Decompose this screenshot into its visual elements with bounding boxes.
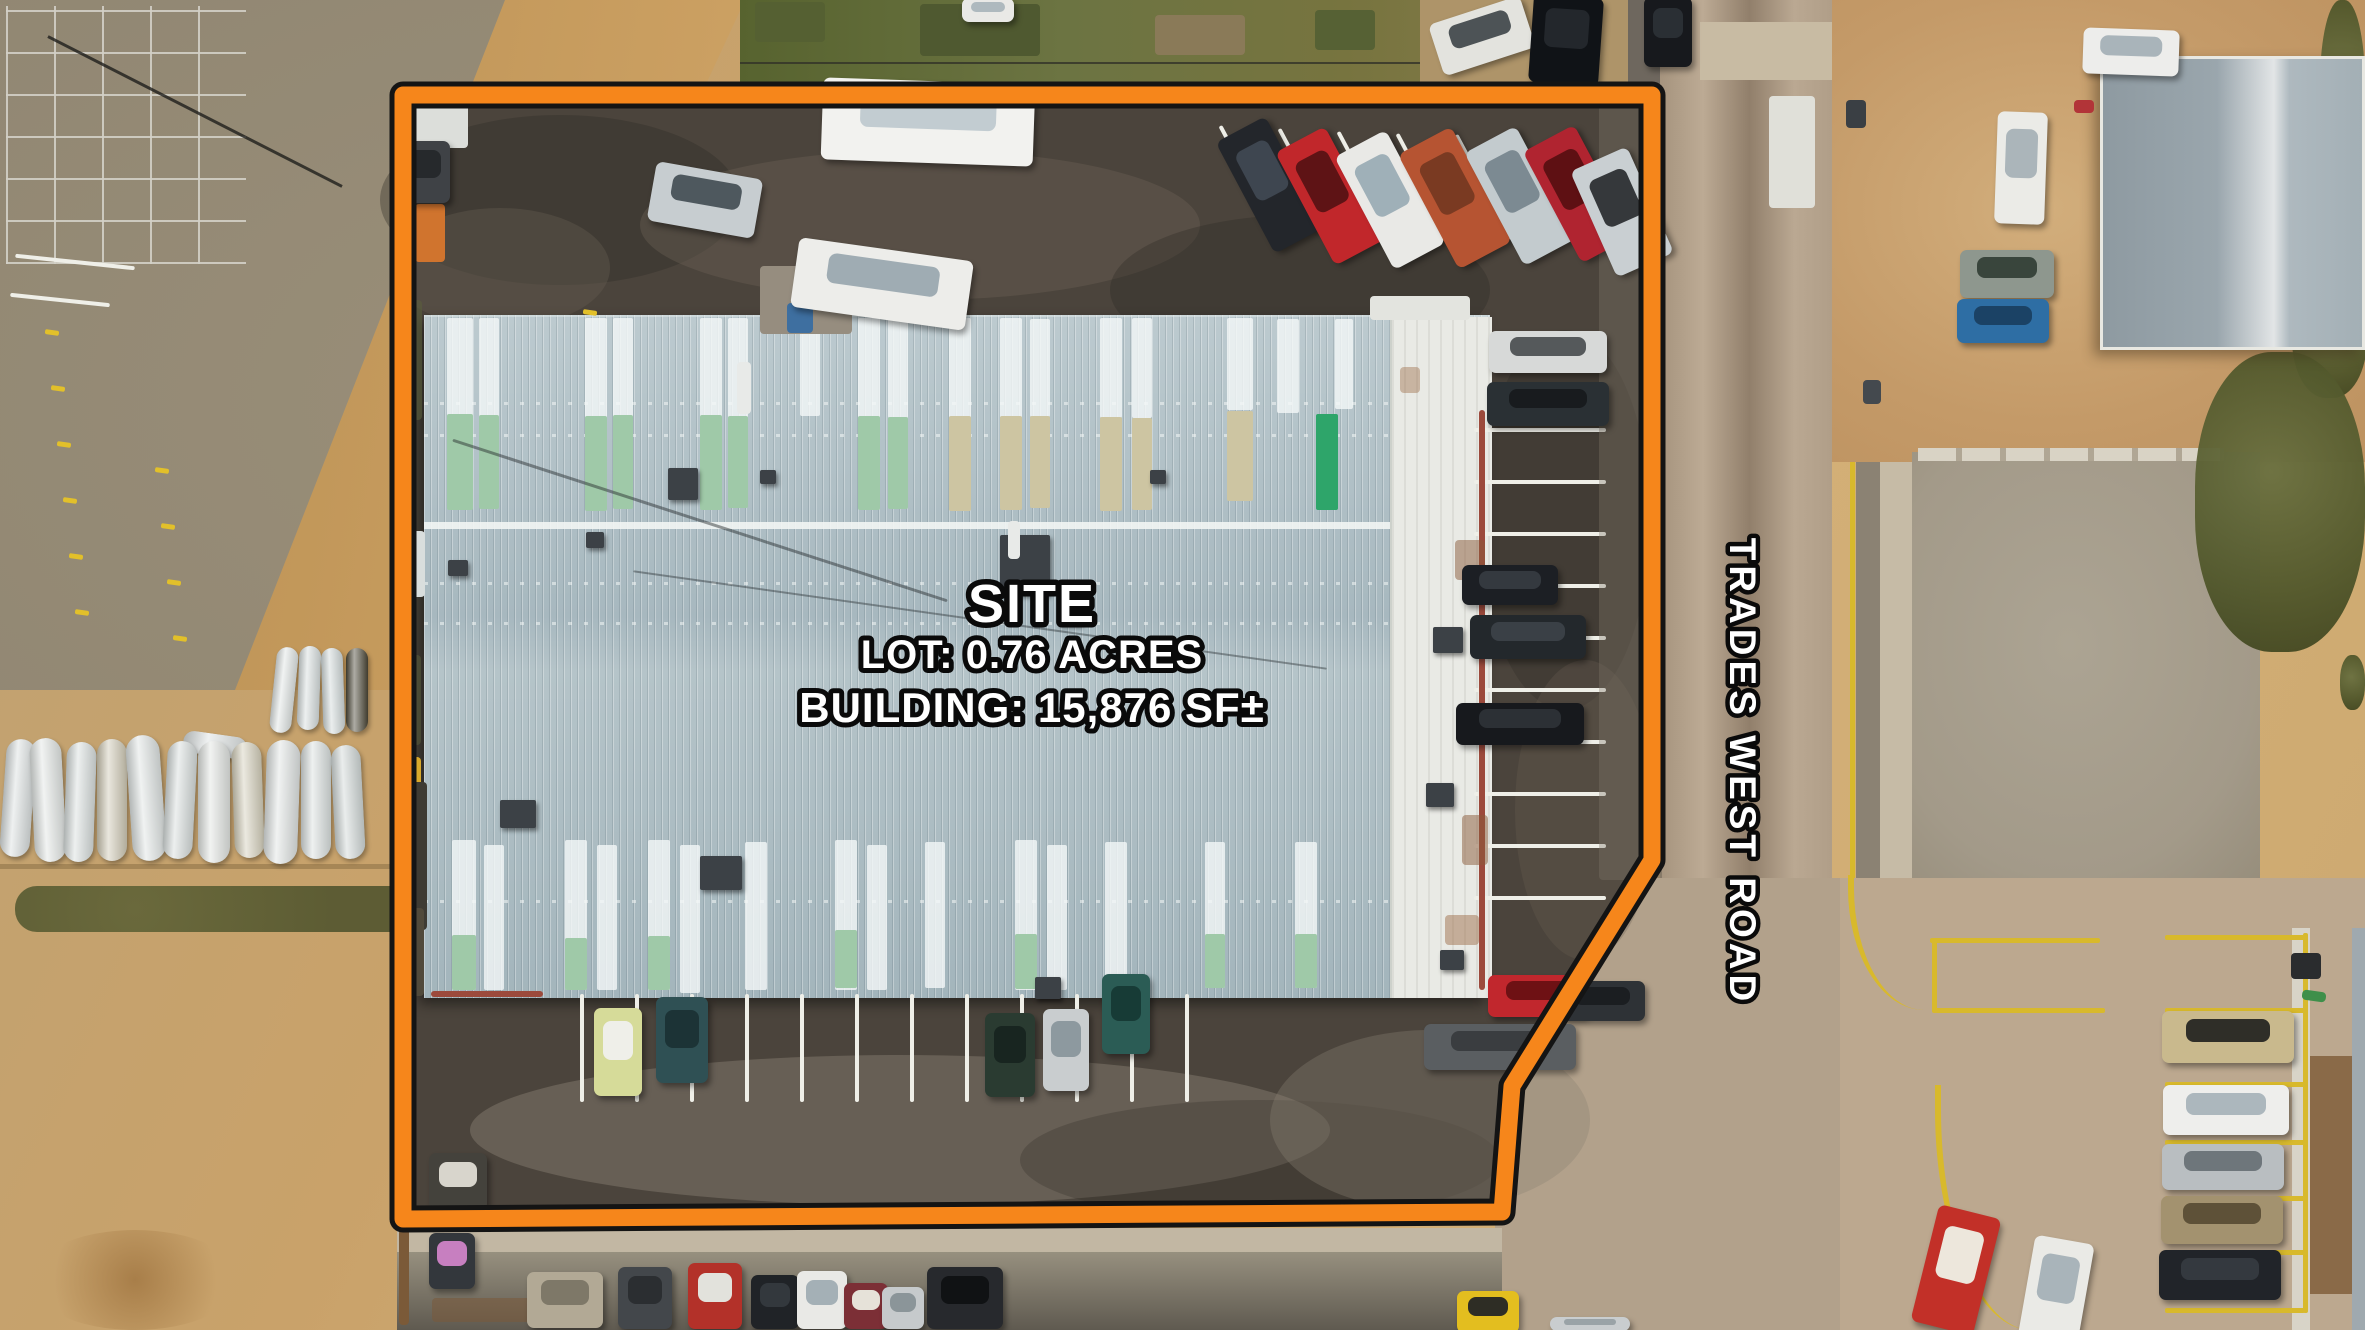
vehicle (594, 1008, 642, 1096)
scene-object (1462, 815, 1488, 865)
yellow-stall-line (1935, 1008, 2105, 1013)
roof-skylight-strip (867, 845, 887, 990)
vehicle-glass (1977, 257, 2037, 278)
vehicle-glass (541, 1280, 590, 1305)
vehicle-glass (439, 1162, 476, 1188)
vehicle-glass (1451, 1031, 1548, 1051)
vehicle-glass (1491, 622, 1565, 641)
vehicle (1456, 703, 1584, 745)
yellow-marker (75, 609, 90, 616)
roof-skylight-strip (1030, 416, 1050, 508)
vehicle-glass (1479, 709, 1561, 727)
yellow-marker (69, 553, 84, 560)
vehicle-glass (1509, 389, 1587, 408)
parking-stall-line (1474, 480, 1606, 484)
vehicle-glass (941, 1276, 990, 1303)
scene-object (1846, 100, 1866, 128)
roof-skylight-strip (648, 936, 670, 990)
rooftop-hvac-unit (1440, 950, 1464, 970)
roof-skylight-strip (680, 845, 700, 993)
roof-skylight-strip (452, 935, 476, 990)
vehicle-glass (806, 1280, 838, 1306)
vehicle (985, 1013, 1035, 1097)
storage-tank (297, 646, 322, 731)
vehicle-glass (698, 1273, 733, 1302)
roof-skylight-strip (1100, 417, 1122, 511)
scene-object (415, 204, 445, 262)
scene-object (1155, 15, 1245, 55)
vehicle-glass (628, 1276, 663, 1303)
roof-skylight-strip (949, 318, 971, 418)
vehicle (1043, 1009, 1089, 1091)
storage-tank (231, 742, 265, 859)
scene-object (406, 300, 422, 420)
roof-skylight-strip (585, 416, 607, 511)
roof-skylight-strip (1295, 934, 1317, 988)
vehicle (2162, 1011, 2294, 1063)
rooftop-hvac-unit (586, 532, 604, 548)
yellow-marker (167, 579, 182, 586)
vehicle (882, 1287, 924, 1329)
vehicle-glass (2184, 1151, 2262, 1171)
vehicle-glass (1587, 167, 1644, 230)
scene-object (2291, 953, 2321, 979)
roof-skylight-strip (585, 318, 607, 418)
vehicle-glass (1510, 337, 1586, 355)
vehicle-glass (409, 150, 441, 177)
vehicle-glass (2186, 1019, 2270, 1042)
roof-skylight-strip (835, 930, 857, 988)
scene-object (2074, 100, 2094, 113)
vehicle-glass (670, 173, 743, 211)
vehicle (1424, 1024, 1576, 1070)
roof-skylight-strip (888, 417, 908, 509)
yellow-stall-line (2165, 1308, 2305, 1313)
parking-stall-line (910, 994, 914, 1102)
vehicle (1489, 331, 1607, 373)
storage-tank (330, 744, 366, 859)
parking-stall-line (1474, 896, 1606, 900)
parking-stall-line (10, 293, 110, 307)
roof-skylight-strip (888, 318, 908, 418)
vehicle-glass (760, 1283, 791, 1307)
vehicle-glass (437, 1241, 466, 1266)
vehicle (1994, 111, 2048, 225)
roof-skylight-strip (1132, 318, 1152, 418)
roof-skylight-strip (700, 415, 722, 510)
scene-object (400, 908, 424, 996)
vehicle-glass (852, 1290, 880, 1310)
vehicle (927, 1267, 1003, 1329)
vehicle (1957, 299, 2049, 343)
roof-skylight-strip (1227, 411, 1253, 501)
vehicle (1550, 1317, 1630, 1330)
roof-skylight-strip (800, 321, 820, 416)
yellow-marker (51, 385, 66, 392)
yellow-marker (583, 309, 598, 316)
scene-object (1479, 410, 1485, 990)
yellow-stall-line (1930, 938, 2100, 943)
vehicle-glass (2100, 35, 2162, 57)
roof-skylight-strip (447, 318, 473, 418)
storage-tank (269, 646, 300, 734)
vehicle-glass (2005, 128, 2039, 178)
vehicle (429, 1153, 487, 1211)
roof-skylight-strip (728, 416, 748, 508)
storage-tank (29, 737, 67, 863)
roof-skylight-strip (597, 845, 617, 990)
roof-skylight-strip (1105, 842, 1127, 990)
vehicle (2161, 1196, 2283, 1244)
roof-skylight-strip (1277, 319, 1299, 413)
rooftop-hvac-unit (1433, 627, 1463, 653)
vehicle (656, 997, 708, 1083)
yellow-stall-line (1932, 938, 1937, 1013)
vehicle (1559, 981, 1645, 1021)
yellow-marker (161, 523, 176, 530)
parking-stall-line (580, 994, 584, 1102)
roof-skylight-strip (484, 845, 504, 990)
parking-stall-line (15, 254, 135, 271)
vehicle (962, 0, 1014, 22)
roof-skylight-strip (1132, 418, 1152, 510)
vehicle (647, 161, 764, 239)
vehicle-glass (1974, 306, 2033, 325)
vehicle-glass (1653, 8, 1684, 39)
roof-skylight-strip (565, 938, 587, 990)
scene-object (399, 1215, 409, 1325)
vehicle-glass (1447, 9, 1513, 51)
rooftop-hvac-unit (500, 800, 536, 828)
rooftop-hvac-unit (980, 700, 998, 714)
scene-object (755, 2, 825, 42)
scene-object (407, 655, 421, 745)
scene-object (737, 362, 751, 414)
rooftop-hvac-unit (1058, 605, 1082, 625)
parking-stall-line (1474, 844, 1606, 848)
vehicle (1487, 382, 1609, 426)
vehicle (1428, 0, 1536, 77)
vehicle-glass (971, 2, 1004, 13)
vehicle (1528, 0, 1604, 86)
vehicle-glass (2186, 1093, 2267, 1115)
scene-object (1315, 10, 1375, 50)
vehicle (1462, 565, 1558, 605)
scene-object (431, 991, 543, 997)
scene-object (633, 570, 1326, 669)
parking-stall-line (1474, 792, 1606, 796)
vehicle (400, 141, 450, 203)
storage-tank (346, 648, 368, 732)
rooftop-hvac-unit (700, 856, 742, 890)
rooftop-hvac-unit (1150, 470, 1166, 484)
yellow-stall-line (2165, 935, 2305, 940)
scene-object (399, 531, 425, 597)
vehicle (1457, 1291, 1519, 1330)
roof-skylight-strip (1227, 318, 1253, 410)
aerial-site-photo: SITE LOT: 0.76 ACRES BUILDING: 15,876 SF… (0, 0, 2365, 1330)
roof-skylight-strip (745, 842, 767, 990)
vehicle (429, 1233, 475, 1289)
vehicle-glass (1543, 8, 1590, 50)
vehicle (2163, 1085, 2289, 1135)
vehicle-glass (1934, 1224, 1987, 1285)
roof-skylight-strip (1100, 318, 1122, 418)
vehicle (797, 1271, 847, 1329)
scene-object (1769, 96, 1815, 208)
vehicle (2082, 27, 2180, 76)
storage-tank (301, 741, 331, 859)
scene-objects-layer (0, 0, 2365, 1330)
storage-tank (162, 740, 198, 859)
roof-skylight-strip (1316, 414, 1338, 510)
yellow-marker (57, 441, 72, 448)
vehicle (751, 1275, 799, 1329)
roof-skylight-strip (1000, 416, 1022, 510)
parking-stall-line (1474, 428, 1606, 432)
vehicle-glass (890, 1293, 917, 1311)
vehicle-glass (1574, 987, 1629, 1005)
roof-skylight-strip (925, 842, 945, 988)
roof-skylight-strip (700, 318, 722, 418)
roof-skylight-strip (479, 318, 499, 418)
yellow-marker (45, 329, 60, 336)
storage-tank (63, 742, 97, 863)
vehicle (527, 1272, 603, 1328)
parking-stall-line (855, 994, 859, 1102)
vehicle (1470, 615, 1586, 659)
vehicle-glass (603, 1021, 634, 1060)
parking-stall-line (745, 994, 749, 1102)
vehicle-glass (2181, 1258, 2259, 1280)
vehicle-glass (1564, 1319, 1615, 1325)
roof-skylight-strip (613, 318, 633, 418)
rooftop-hvac-unit (1035, 977, 1061, 999)
vehicle (2159, 1250, 2281, 1300)
storage-tank (263, 739, 301, 864)
vehicle (1910, 1204, 2001, 1330)
vehicle (1960, 250, 2054, 298)
roof-skylight-strip (858, 318, 880, 418)
roof-skylight-strip (949, 416, 971, 511)
parking-stall-line (800, 994, 804, 1102)
yellow-marker (173, 635, 188, 642)
scene-object (1863, 380, 1881, 404)
vehicle (2162, 1144, 2284, 1190)
rooftop-hvac-unit (668, 468, 698, 500)
vehicle-glass (1479, 571, 1540, 589)
vehicle-glass (665, 1010, 698, 1048)
scene-object (1445, 915, 1479, 945)
vehicle-glass (1051, 1021, 1080, 1057)
roof-skylight-strip (1000, 318, 1022, 418)
rooftop-hvac-unit (448, 560, 468, 576)
roof-skylight-strip (858, 416, 880, 510)
storage-tank (321, 648, 346, 735)
scene-object (1008, 521, 1020, 559)
parking-stall-line (1474, 532, 1606, 536)
roof-skylight-strip (1030, 319, 1050, 417)
vehicle-glass (1111, 986, 1142, 1021)
vehicle-glass (2035, 1252, 2081, 1305)
vehicle-glass (2183, 1203, 2261, 1224)
vehicle (1102, 974, 1150, 1054)
roof-skylight-strip (479, 415, 499, 509)
storage-tank (125, 734, 168, 862)
vehicle (688, 1263, 742, 1329)
vehicle (618, 1267, 672, 1329)
roof-skylight-strip (1047, 845, 1067, 990)
parking-stall-line (965, 994, 969, 1102)
vehicle-glass (860, 91, 997, 132)
vehicle-glass (1468, 1297, 1508, 1315)
storage-tank (198, 741, 230, 863)
parking-stall-line (1185, 994, 1189, 1102)
scene-object (1370, 296, 1470, 320)
storage-tank (97, 739, 127, 861)
yellow-marker (63, 497, 78, 504)
yellow-marker (155, 467, 170, 474)
vehicle-glass (825, 252, 941, 298)
vehicle (2017, 1235, 2094, 1330)
parking-stall-line (1474, 688, 1606, 692)
vehicle-glass (994, 1026, 1026, 1063)
roof-skylight-strip (1205, 934, 1225, 988)
vehicle (821, 77, 1036, 166)
roof-skylight-strip (1015, 934, 1037, 989)
rooftop-hvac-unit (760, 470, 776, 484)
rooftop-hvac-unit (1426, 783, 1454, 807)
roof-skylight-strip (1335, 319, 1353, 409)
roof-skylight-strip (447, 414, 473, 510)
scene-object (1400, 367, 1420, 393)
vehicle (1644, 0, 1692, 67)
